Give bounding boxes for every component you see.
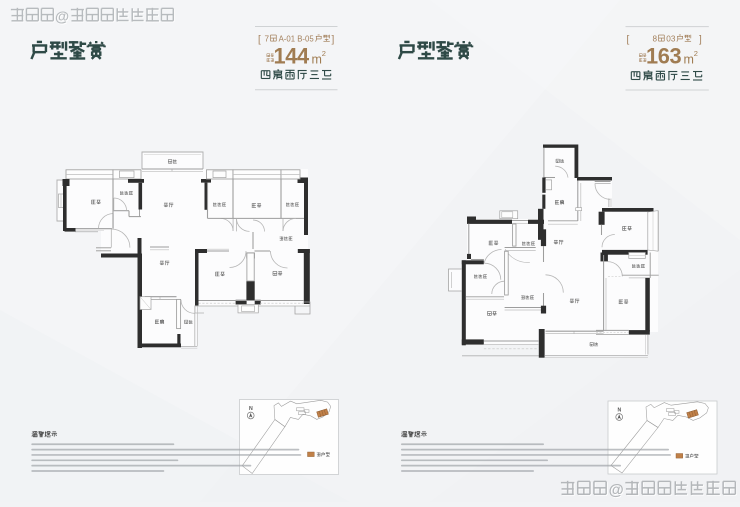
svg-text:@: @: [55, 10, 69, 26]
svg-text:2: 2: [322, 49, 326, 58]
svg-text:]: ]: [699, 35, 702, 46]
svg-text:[: [: [627, 35, 630, 46]
svg-text:m: m: [312, 52, 322, 66]
svg-text:m: m: [684, 52, 694, 66]
svg-text:[: [: [258, 35, 261, 46]
svg-text:@: @: [609, 482, 624, 499]
svg-text:N: N: [249, 406, 253, 412]
svg-text:8: 8: [653, 34, 658, 43]
svg-text:144: 144: [274, 44, 309, 69]
svg-text:163: 163: [646, 44, 681, 69]
svg-text:2: 2: [694, 49, 698, 58]
svg-text:7: 7: [265, 34, 270, 43]
svg-text:A-01 B-05: A-01 B-05: [279, 34, 315, 43]
svg-text:N: N: [618, 408, 622, 414]
svg-text:]: ]: [332, 35, 335, 46]
svg-text:03: 03: [666, 34, 676, 43]
